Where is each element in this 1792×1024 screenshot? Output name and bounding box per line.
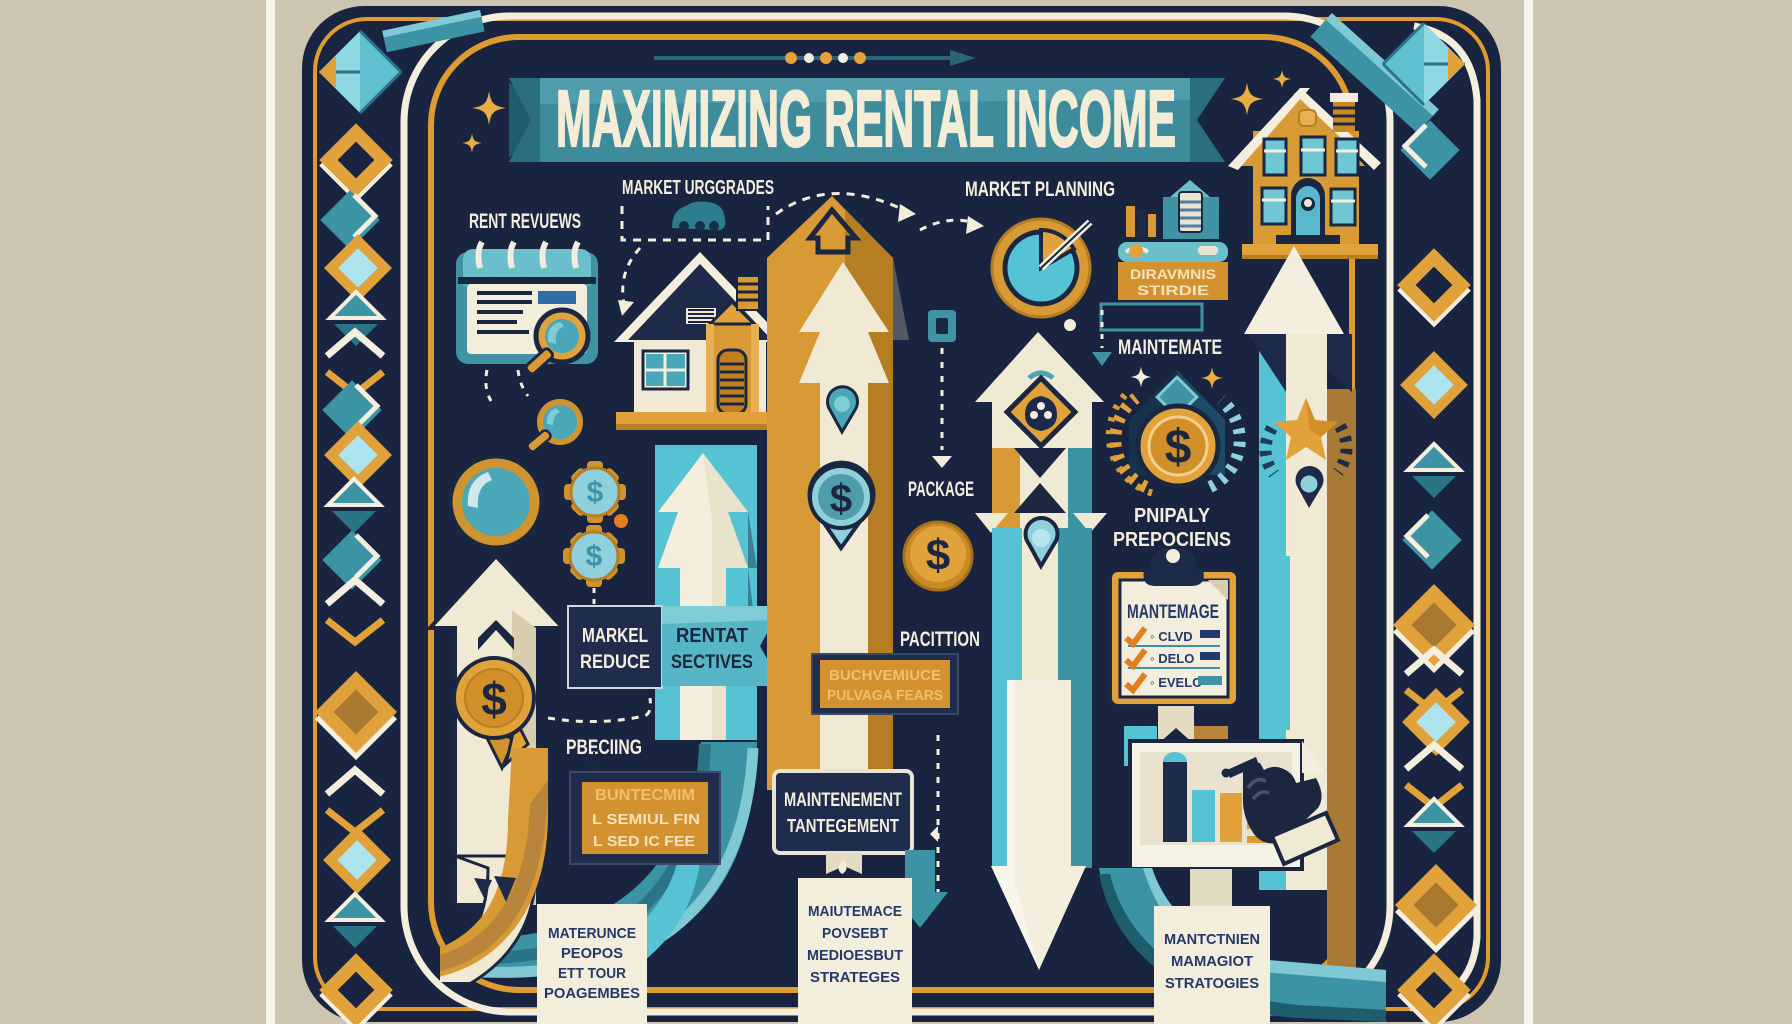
svg-text:$: $ xyxy=(481,673,507,725)
svg-text:MARKET URGGRADES: MARKET URGGRADES xyxy=(622,177,774,199)
svg-text:MARKET PLANNING: MARKET PLANNING xyxy=(965,178,1115,201)
svg-text:POVSEBT: POVSEBT xyxy=(822,925,888,942)
svg-text:MAINTEMATE: MAINTEMATE xyxy=(1118,336,1222,359)
svg-text:RENT REVUEWS: RENT REVUEWS xyxy=(469,210,581,233)
svg-text:PULVAGA FEARS: PULVAGA FEARS xyxy=(827,687,943,704)
svg-text:◦ DELO: ◦ DELO xyxy=(1150,651,1194,666)
svg-text:MEDIOESBUT: MEDIOESBUT xyxy=(807,947,903,964)
svg-text:PACKAGE: PACKAGE xyxy=(908,478,974,501)
svg-text:PEOPOS: PEOPOS xyxy=(561,945,623,962)
svg-text:$: $ xyxy=(830,477,852,521)
svg-text:MARKEL: MARKEL xyxy=(582,625,648,647)
svg-text:PREPOCIENS: PREPOCIENS xyxy=(1113,529,1231,551)
svg-text:PNIPALY: PNIPALY xyxy=(1134,505,1211,527)
svg-text:$: $ xyxy=(926,531,950,580)
svg-text:STRATEGES: STRATEGES xyxy=(810,969,900,986)
svg-text:MANTCTNIEN: MANTCTNIEN xyxy=(1164,931,1260,948)
svg-text:L SED IC FEE: L SED IC FEE xyxy=(593,833,695,850)
svg-text:RENTAT: RENTAT xyxy=(676,625,748,647)
svg-text:MATERUNCE: MATERUNCE xyxy=(548,925,636,942)
svg-text:L SEMIUL FIN: L SEMIUL FIN xyxy=(592,811,700,828)
svg-text:MAXIMIZING RENTAL INCOME: MAXIMIZING RENTAL INCOME xyxy=(556,74,1176,163)
svg-text:DIRAVMNIS: DIRAVMNIS xyxy=(1130,266,1216,282)
svg-text:STIRDIE: STIRDIE xyxy=(1137,282,1209,298)
svg-text:$: $ xyxy=(587,476,604,509)
svg-text:$: $ xyxy=(586,540,603,573)
svg-text:STRATOGIES: STRATOGIES xyxy=(1165,975,1259,992)
svg-text:PBECIING: PBECIING xyxy=(566,736,642,759)
svg-text:PACITTION: PACITTION xyxy=(900,628,980,651)
svg-text:MANTEMAGE: MANTEMAGE xyxy=(1127,602,1219,623)
svg-text:MAMAGIOT: MAMAGIOT xyxy=(1171,953,1253,970)
svg-text:MAINTENEMENT: MAINTENEMENT xyxy=(784,790,902,811)
svg-text:BUCHVEMIUCE: BUCHVEMIUCE xyxy=(829,667,941,684)
svg-text:◦ CLVD: ◦ CLVD xyxy=(1150,629,1193,644)
svg-text:ETT TOUR: ETT TOUR xyxy=(558,965,626,982)
svg-text:REDUCE: REDUCE xyxy=(580,652,650,673)
svg-text:$: $ xyxy=(1165,421,1192,474)
svg-text:POAGEMBES: POAGEMBES xyxy=(544,985,640,1002)
svg-text:TANTEGEMENT: TANTEGEMENT xyxy=(787,816,899,836)
svg-text:SECTIVES: SECTIVES xyxy=(671,652,753,673)
svg-text:◦ EVELO: ◦ EVELO xyxy=(1150,675,1202,690)
svg-text:BUNTECMIM: BUNTECMIM xyxy=(595,787,695,804)
svg-text:MAIUTEMACE: MAIUTEMACE xyxy=(808,903,902,920)
